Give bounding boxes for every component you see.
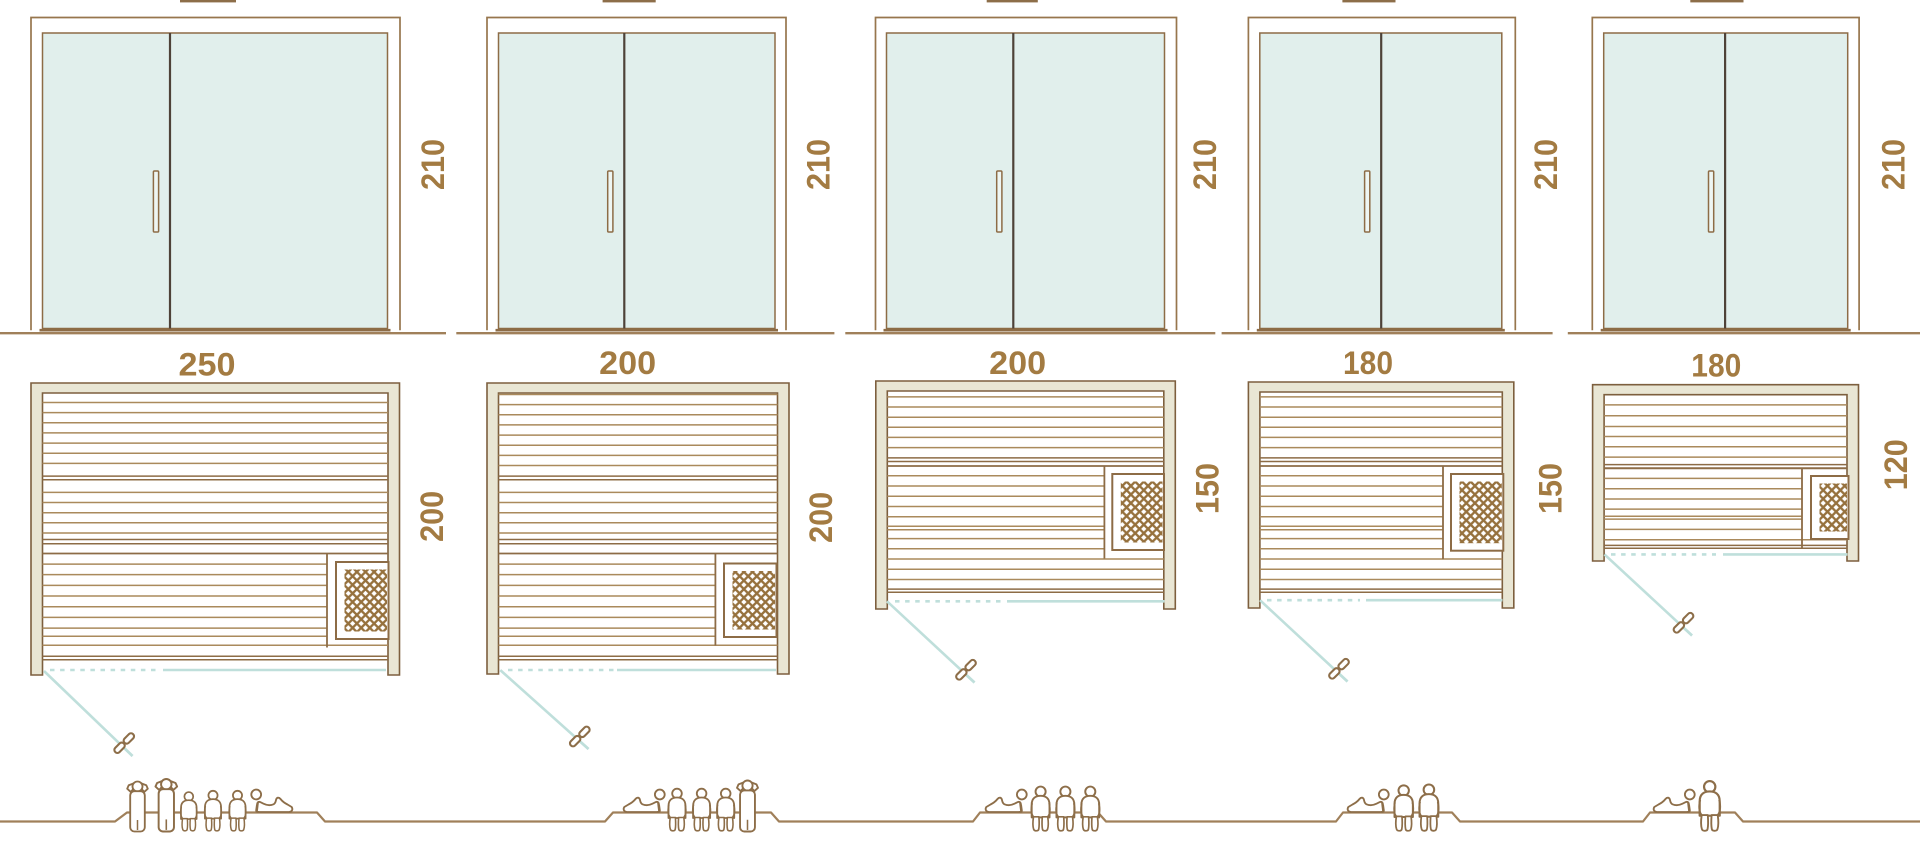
svg-text:150: 150 [1533, 463, 1569, 514]
svg-text:210: 210 [1876, 139, 1912, 190]
svg-text:200: 200 [414, 491, 450, 542]
svg-text:210: 210 [801, 139, 837, 190]
svg-text:180: 180 [1343, 345, 1393, 381]
svg-text:210: 210 [1528, 139, 1564, 190]
svg-text:150: 150 [1190, 463, 1226, 514]
svg-text:210: 210 [1187, 139, 1223, 190]
svg-text:210: 210 [415, 139, 451, 190]
svg-text:120: 120 [1878, 439, 1914, 490]
svg-text:250: 250 [179, 347, 236, 383]
svg-text:200: 200 [989, 345, 1046, 381]
svg-text:200: 200 [803, 492, 839, 543]
svg-text:200: 200 [599, 345, 656, 381]
svg-text:180: 180 [1691, 348, 1741, 384]
